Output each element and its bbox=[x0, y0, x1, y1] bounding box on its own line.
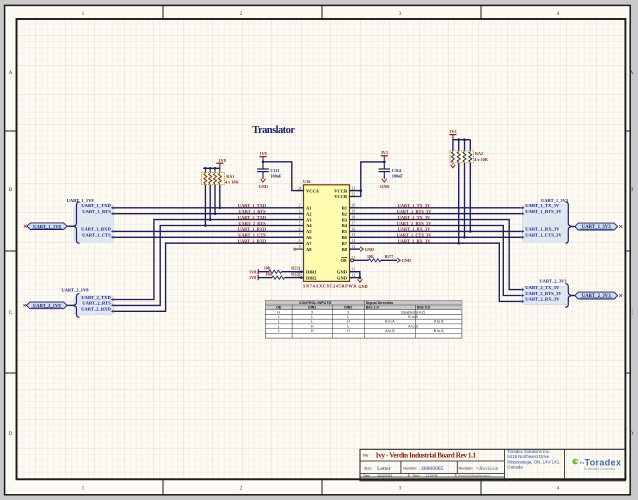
svg-text:A to B: A to B bbox=[434, 320, 444, 324]
svg-text:L: L bbox=[278, 329, 280, 333]
svg-text:4: 4 bbox=[299, 216, 301, 220]
svg-text:VCCB: VCCB bbox=[334, 188, 347, 193]
svg-text:A: A bbox=[630, 70, 634, 76]
svg-text:L: L bbox=[278, 320, 280, 324]
svg-text:UART_2_RTS_3V: UART_2_RTS_3V bbox=[525, 291, 562, 296]
svg-text:L: L bbox=[278, 325, 280, 329]
svg-text:D: D bbox=[630, 431, 634, 437]
svg-text:L: L bbox=[347, 315, 349, 319]
svg-text:UART_1_TX_3V: UART_1_TX_3V bbox=[398, 203, 431, 208]
svg-text:A1: A1 bbox=[306, 206, 312, 211]
svg-text:UART_1_TXD: UART_1_TXD bbox=[81, 203, 111, 208]
svg-text:UART_1_3V3: UART_1_3V3 bbox=[582, 225, 611, 230]
svg-text:H: H bbox=[347, 329, 350, 333]
svg-text:UART_2_TXD: UART_2_TXD bbox=[81, 295, 111, 300]
svg-text:3: 3 bbox=[299, 210, 301, 214]
svg-text:UART_1_CTS: UART_1_CTS bbox=[238, 233, 266, 238]
svg-text:UART_2_RX_3V: UART_2_RX_3V bbox=[525, 297, 560, 302]
svg-text:21: 21 bbox=[352, 256, 356, 260]
svg-text:3: 3 bbox=[399, 11, 402, 17]
svg-text:H: H bbox=[277, 310, 280, 314]
svg-text:GND: GND bbox=[337, 269, 348, 274]
svg-text:UART_2_RXD: UART_2_RXD bbox=[238, 239, 266, 244]
svg-text:UART_1_RTS: UART_1_RTS bbox=[238, 209, 266, 214]
svg-text:DIR1: DIR1 bbox=[308, 306, 316, 310]
svg-text:DIR2: DIR2 bbox=[344, 306, 352, 310]
svg-text:UART_2_RTS: UART_2_RTS bbox=[238, 221, 266, 226]
svg-text:100nF: 100nF bbox=[392, 173, 404, 178]
svg-text:H: H bbox=[311, 325, 314, 329]
svg-text:B to A: B to A bbox=[385, 320, 395, 324]
svg-text:GND: GND bbox=[402, 258, 411, 263]
svg-text:SN74AXC8T245RPWR: SN74AXC8T245RPWR bbox=[303, 284, 357, 289]
svg-text:B2: B2 bbox=[342, 211, 348, 216]
svg-text:20: 20 bbox=[352, 204, 356, 208]
svg-text:UART_2_RX_3V: UART_2_RX_3V bbox=[398, 239, 432, 244]
svg-text:L: L bbox=[311, 320, 313, 324]
svg-text:8: 8 bbox=[299, 239, 301, 243]
svg-text:Bits 1:4: Bits 1:4 bbox=[366, 306, 379, 310]
svg-text:UART_1_CTS_3V: UART_1_CTS_3V bbox=[525, 233, 562, 238]
svg-text:UART_2_3V3: UART_2_3V3 bbox=[539, 279, 567, 284]
svg-text:Title: Title bbox=[363, 453, 369, 457]
svg-text:Embedded Computing: Embedded Computing bbox=[584, 467, 615, 471]
svg-text:Revision:: Revision: bbox=[459, 466, 474, 470]
svg-text:1: 1 bbox=[82, 486, 85, 492]
svg-text:15: 15 bbox=[352, 233, 356, 237]
svg-text:=Revision: =Revision bbox=[475, 466, 498, 472]
svg-text:3: 3 bbox=[399, 486, 402, 492]
svg-text:RA1: RA1 bbox=[226, 174, 234, 179]
svg-text:R277: R277 bbox=[385, 255, 394, 259]
svg-text:B8: B8 bbox=[342, 247, 348, 252]
svg-text:2: 2 bbox=[240, 486, 243, 492]
svg-text:UART_1_RTS_3V: UART_1_RTS_3V bbox=[397, 209, 433, 214]
svg-text:Bits 5:8: Bits 5:8 bbox=[417, 306, 430, 310]
svg-text:11: 11 bbox=[352, 268, 356, 272]
svg-text:9: 9 bbox=[299, 245, 301, 249]
svg-text:Signal Direction: Signal Direction bbox=[366, 301, 393, 305]
svg-text:10K: 10K bbox=[367, 255, 374, 259]
svg-text:UART_1_RXD: UART_1_RXD bbox=[238, 227, 266, 232]
svg-text:Canada: Canada bbox=[507, 464, 523, 469]
svg-text:A8: A8 bbox=[306, 247, 312, 252]
svg-text:19: 19 bbox=[352, 210, 356, 214]
svg-text:C314: C314 bbox=[392, 168, 402, 173]
svg-text:A: A bbox=[9, 70, 13, 76]
svg-text:File:: File: bbox=[364, 478, 370, 482]
svg-text:A4: A4 bbox=[306, 223, 312, 228]
svg-text:UART_2_TX_3V: UART_2_TX_3V bbox=[398, 215, 431, 220]
svg-text:UART_1_CTS_3V: UART_1_CTS_3V bbox=[397, 233, 433, 238]
svg-text:H: H bbox=[311, 329, 314, 333]
svg-text:B to A: B to A bbox=[434, 329, 444, 333]
svg-text:13: 13 bbox=[352, 245, 356, 249]
svg-text:Toradex: Toradex bbox=[585, 457, 622, 467]
svg-text:UART_1_RTS_3V: UART_1_RTS_3V bbox=[525, 209, 562, 214]
svg-text:17: 17 bbox=[352, 221, 356, 225]
svg-text:H: H bbox=[347, 320, 350, 324]
svg-text:7: 7 bbox=[299, 233, 301, 237]
svg-text:24: 24 bbox=[298, 187, 302, 191]
svg-text:UART_1_CTS: UART_1_CTS bbox=[82, 233, 111, 238]
svg-text:Number:: Number: bbox=[403, 466, 417, 470]
svg-text:RA2: RA2 bbox=[475, 151, 483, 156]
svg-text:UART_2_1V8: UART_2_1V8 bbox=[61, 288, 89, 293]
svg-text:UART_2_RTS: UART_2_RTS bbox=[82, 301, 111, 306]
svg-text:GND: GND bbox=[365, 247, 374, 252]
svg-text:B3: B3 bbox=[342, 217, 348, 222]
svg-text:VCCB: VCCB bbox=[334, 194, 347, 199]
svg-text:4 x 10K: 4 x 10K bbox=[225, 180, 239, 185]
svg-text:Size:: Size: bbox=[364, 466, 372, 470]
svg-text:VCCA: VCCA bbox=[306, 188, 320, 193]
svg-text:1V8: 1V8 bbox=[219, 158, 226, 163]
svg-text:4: 4 bbox=[557, 11, 560, 17]
svg-text:4 x 10K: 4 x 10K bbox=[474, 157, 488, 162]
svg-text:12: 12 bbox=[352, 274, 356, 278]
svg-text:UART_2_RXD: UART_2_RXD bbox=[81, 307, 111, 312]
svg-text:R222: R222 bbox=[291, 273, 300, 277]
svg-text:18: 18 bbox=[352, 216, 356, 220]
svg-text:B: B bbox=[630, 187, 634, 193]
svg-text:B7: B7 bbox=[342, 241, 348, 246]
svg-text:CONTROL INPUTS: CONTROL INPUTS bbox=[299, 301, 331, 305]
svg-text:B4: B4 bbox=[342, 223, 348, 228]
svg-text:UART_1_TX_3V: UART_1_TX_3V bbox=[525, 203, 560, 208]
svg-text:A7: A7 bbox=[306, 241, 312, 246]
svg-text:R213: R213 bbox=[291, 267, 300, 271]
svg-text:Letter: Letter bbox=[377, 466, 390, 472]
svg-text:5: 5 bbox=[299, 221, 301, 225]
svg-text:4: 4 bbox=[557, 486, 560, 492]
svg-text:1: 1 bbox=[82, 11, 85, 17]
svg-text:17:50:42: 17:50:42 bbox=[426, 473, 438, 477]
svg-text:UART_1_RXD: UART_1_RXD bbox=[81, 227, 111, 232]
svg-text:UART_2_1V8: UART_2_1V8 bbox=[33, 303, 61, 308]
svg-text:(1): (1) bbox=[329, 301, 332, 304]
svg-text:1V8: 1V8 bbox=[249, 269, 256, 274]
svg-text:B5: B5 bbox=[342, 229, 348, 234]
svg-text:C311: C311 bbox=[270, 168, 279, 173]
svg-text:A6: A6 bbox=[306, 235, 312, 240]
svg-text:DIR1: DIR1 bbox=[306, 269, 317, 274]
svg-text:C: C bbox=[630, 310, 634, 316]
svg-text:A to B: A to B bbox=[385, 329, 395, 333]
svg-text:A3: A3 bbox=[306, 217, 312, 222]
svg-text:16: 16 bbox=[352, 227, 356, 231]
svg-text:Translator: Translator bbox=[252, 125, 295, 136]
svg-text:GND: GND bbox=[380, 184, 389, 189]
svg-text:240_Translator.SchDoc: 240_Translator.SchDoc bbox=[377, 478, 409, 482]
svg-text:B: B bbox=[9, 187, 13, 193]
svg-text:B6: B6 bbox=[342, 235, 348, 240]
svg-text:UART_1_RX_3V: UART_1_RX_3V bbox=[525, 227, 560, 232]
svg-text:OE: OE bbox=[340, 258, 347, 263]
svg-text:100nF: 100nF bbox=[270, 173, 282, 178]
svg-text:Ivy - Verdin Industrial Board: Ivy - Verdin Industrial Board Rev 1.1 bbox=[376, 451, 477, 459]
svg-text:1V8: 1V8 bbox=[259, 151, 266, 156]
svg-text:14: 14 bbox=[352, 239, 356, 243]
svg-text:2: 2 bbox=[299, 204, 301, 208]
svg-text:22: 22 bbox=[352, 187, 356, 191]
svg-text:Sheet+of+SheetNumber: Sheet+of+SheetNumber bbox=[458, 473, 490, 477]
svg-text:A2: A2 bbox=[306, 211, 312, 216]
svg-text:U16: U16 bbox=[303, 179, 311, 184]
svg-text:C: C bbox=[9, 310, 13, 316]
svg-text:GND: GND bbox=[337, 275, 348, 280]
svg-text:46806005: 46806005 bbox=[421, 466, 444, 472]
svg-text:A5: A5 bbox=[306, 229, 312, 234]
svg-text:UART_1_1V8: UART_1_1V8 bbox=[33, 224, 61, 229]
svg-text:3V3: 3V3 bbox=[381, 150, 388, 155]
svg-text:2: 2 bbox=[240, 11, 243, 17]
svg-text:UART_1_TXD: UART_1_TXD bbox=[238, 203, 266, 208]
svg-text:GND: GND bbox=[358, 284, 367, 289]
svg-text:L: L bbox=[278, 315, 280, 319]
svg-text:Time:: Time: bbox=[412, 473, 420, 477]
svg-text:UART_2_3V3: UART_2_3V3 bbox=[582, 294, 611, 299]
svg-text:OE: OE bbox=[276, 306, 282, 310]
svg-text:GND: GND bbox=[259, 184, 268, 189]
svg-text:B to A: B to A bbox=[408, 315, 418, 319]
svg-text:UART_1_RTS: UART_1_RTS bbox=[82, 209, 111, 214]
svg-text:UART_2_TXD: UART_2_TXD bbox=[238, 215, 266, 220]
svg-text:B1: B1 bbox=[342, 206, 348, 211]
svg-text:A to B: A to B bbox=[408, 325, 418, 329]
svg-text:10K: 10K bbox=[264, 267, 271, 271]
svg-text:UART_2_TX_3V: UART_2_TX_3V bbox=[525, 285, 560, 290]
svg-text:L: L bbox=[311, 315, 313, 319]
svg-text:10K: 10K bbox=[266, 273, 273, 277]
svg-text:UART_1_RX_3V: UART_1_RX_3V bbox=[398, 227, 432, 232]
svg-text:DIR2: DIR2 bbox=[306, 275, 317, 280]
svg-text:D: D bbox=[9, 431, 13, 437]
svg-text:3V3: 3V3 bbox=[449, 129, 456, 134]
svg-text:1V8: 1V8 bbox=[249, 275, 256, 280]
svg-text:23: 23 bbox=[352, 192, 356, 196]
svg-text:UART_2_RTS_3V: UART_2_RTS_3V bbox=[397, 221, 433, 226]
svg-text:L: L bbox=[347, 325, 349, 329]
svg-text:6: 6 bbox=[299, 227, 301, 231]
svg-text:Disabled (Hi-Z): Disabled (Hi-Z) bbox=[401, 310, 425, 314]
